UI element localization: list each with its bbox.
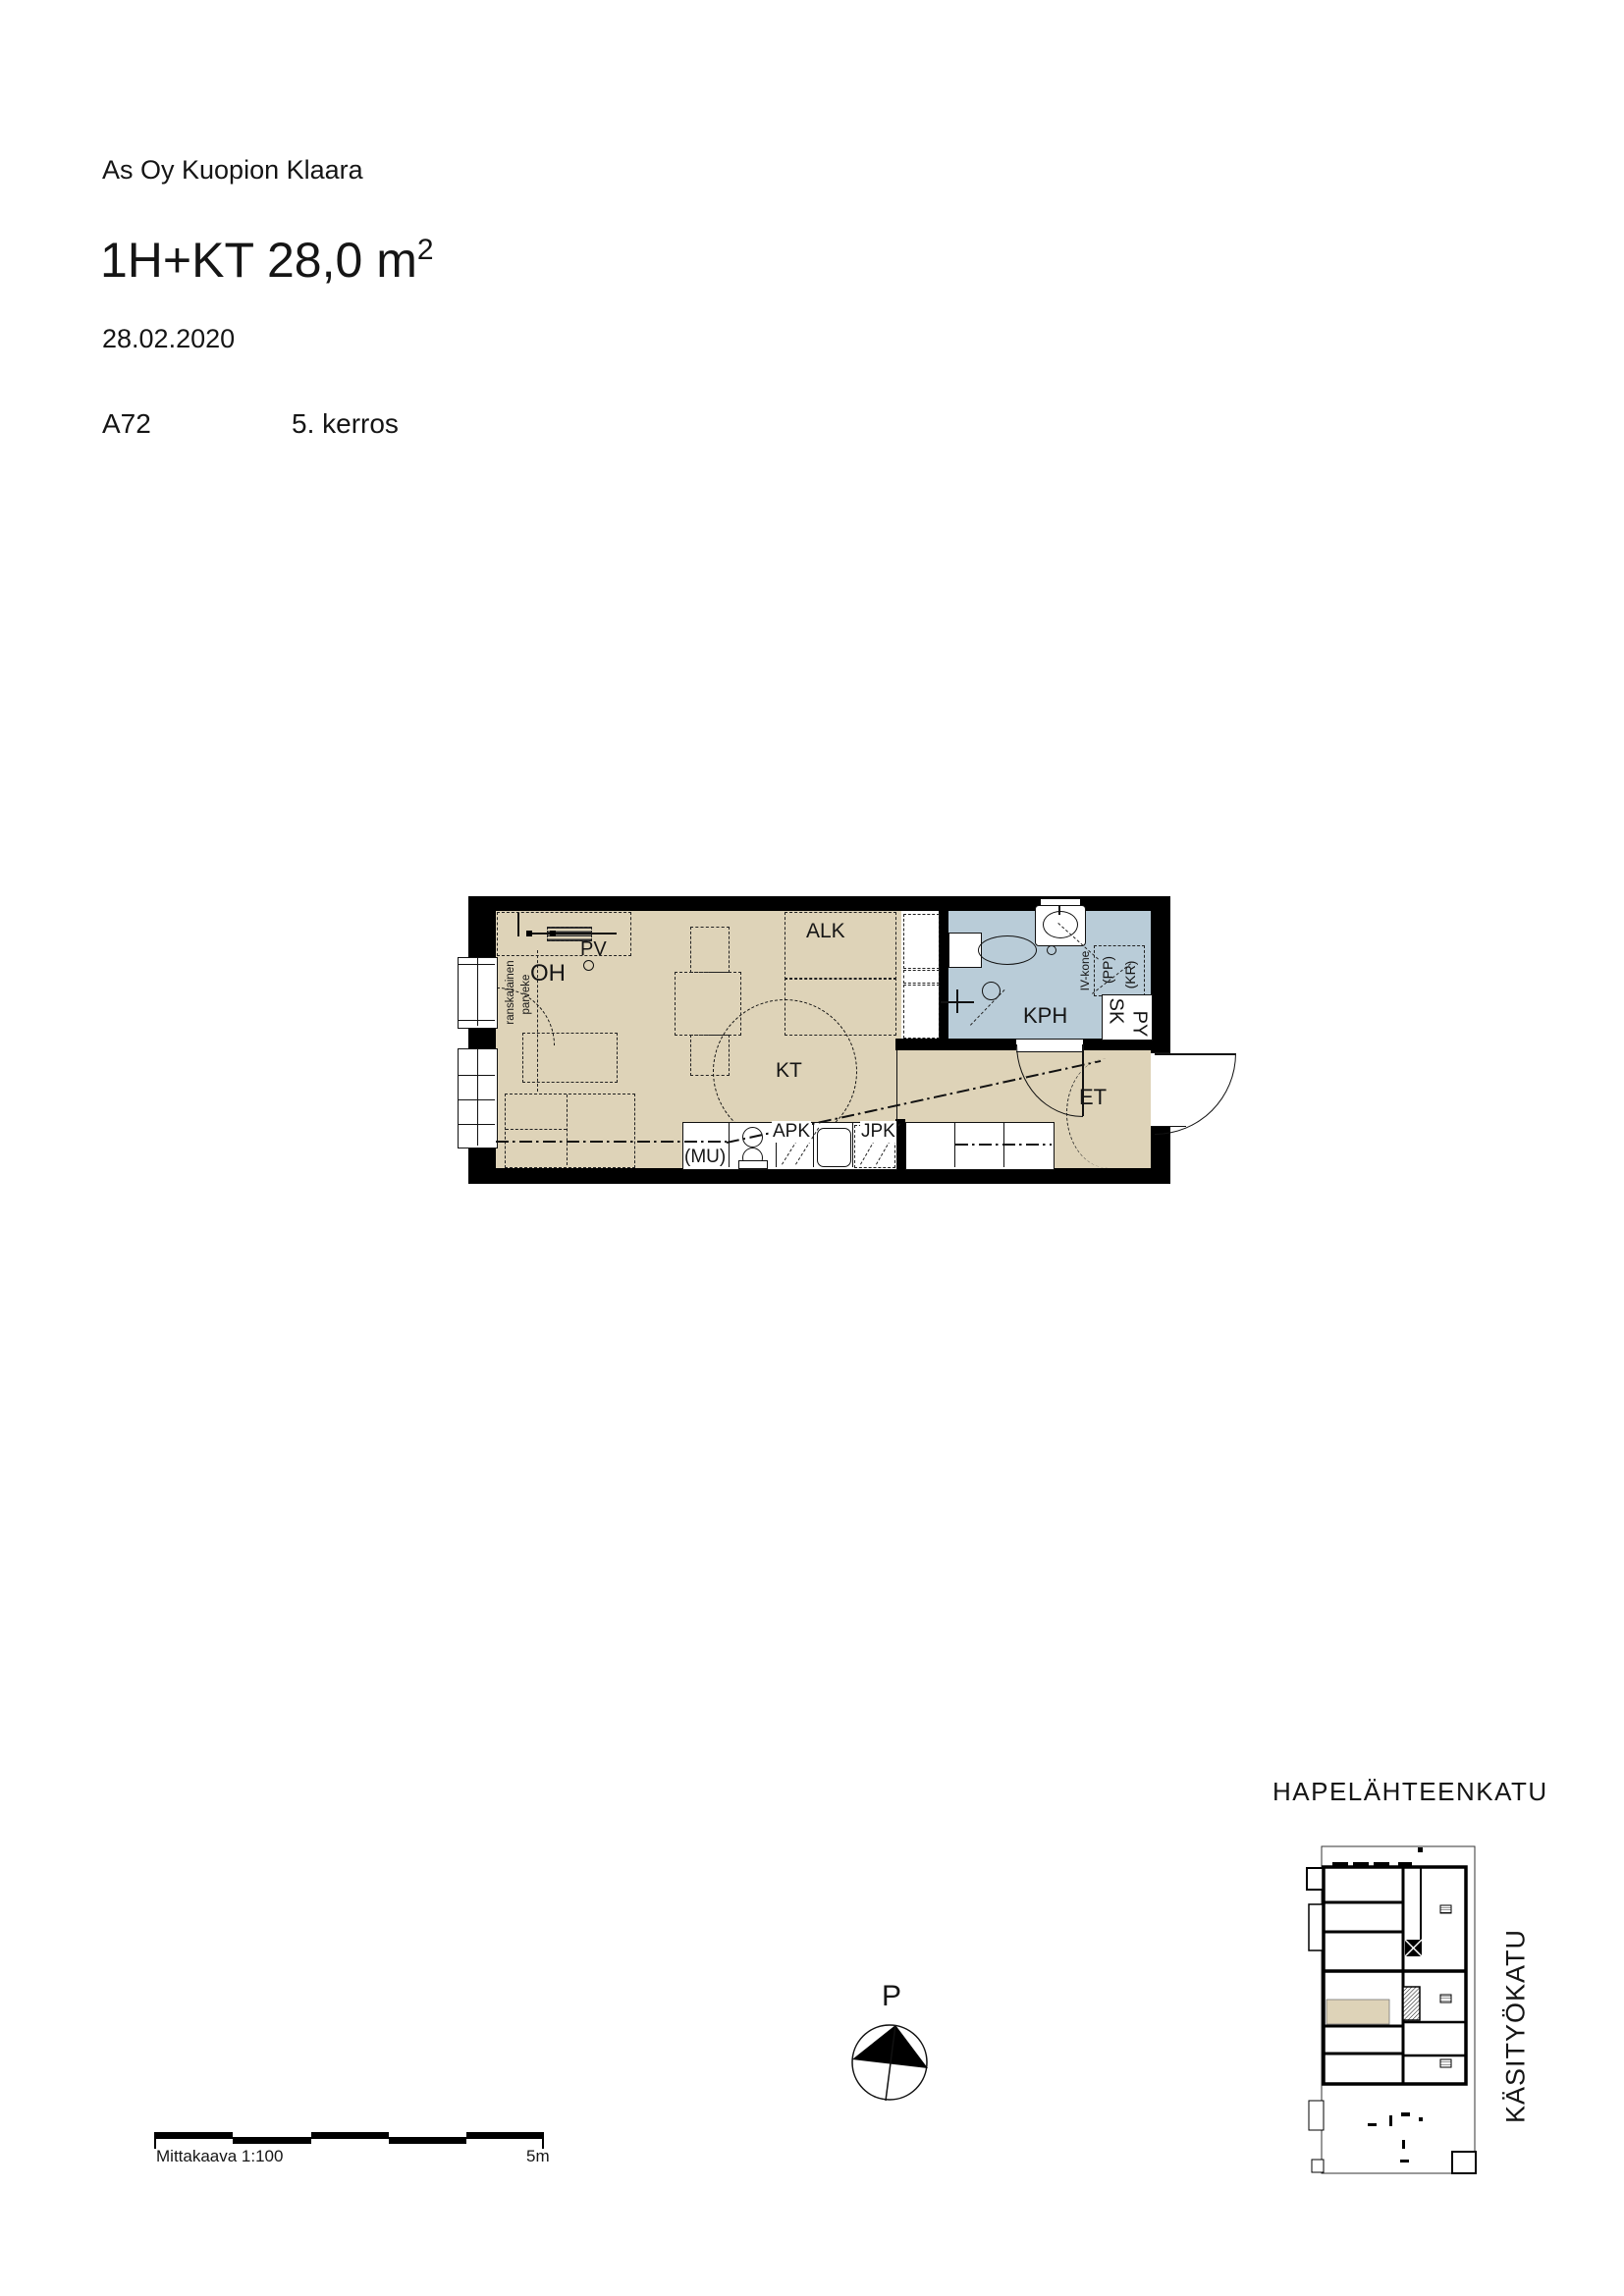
room-label-kph: KPH bbox=[1023, 1003, 1067, 1029]
label-sk: SK bbox=[1105, 998, 1127, 1025]
counter-divider1 bbox=[729, 1123, 730, 1167]
room-label-alk: ALK bbox=[806, 920, 845, 943]
radiator-valve-mark2 bbox=[550, 931, 556, 936]
chair-outline-top bbox=[690, 927, 730, 973]
compass-icon bbox=[846, 2020, 935, 2109]
scalebar-segment bbox=[466, 2132, 543, 2139]
floorplan-document-page: As Oy Kuopion Klaara 1H+KT 28,0 m2 28.02… bbox=[0, 0, 1624, 2296]
counter-divider3 bbox=[813, 1123, 814, 1167]
kitchen-entry-floor-joint bbox=[896, 1050, 897, 1121]
label-py: PY bbox=[1128, 1011, 1151, 1038]
entry-closet bbox=[905, 1122, 1055, 1170]
entry-door-swing-arc bbox=[1155, 1053, 1236, 1135]
window-french-balcony-frame-line2 bbox=[459, 1020, 495, 1021]
sofa-cushion-divider bbox=[567, 1095, 568, 1165]
room-label-oh: OH bbox=[530, 960, 566, 988]
scalebar-segment bbox=[233, 2137, 311, 2144]
apartment-title: 1H+KT 28,0 m2 bbox=[100, 232, 434, 289]
window-living-room-sash-line bbox=[459, 1075, 495, 1076]
wall-bottom bbox=[468, 1168, 1170, 1184]
coffee-table-outline bbox=[522, 1033, 618, 1083]
window-french-balcony-mullion bbox=[477, 958, 478, 1026]
window-living-room-mullion bbox=[477, 1049, 478, 1146]
wall-bathroom-bottom-left bbox=[895, 1039, 1016, 1050]
alcove-wardrobe-lower bbox=[903, 985, 940, 1039]
label-pp: (PP) bbox=[1100, 956, 1115, 984]
label-jpk: JPK bbox=[860, 1121, 896, 1143]
window-french-balcony-frame-line bbox=[459, 964, 495, 965]
apartment-type-area: 1H+KT 28,0 m bbox=[100, 233, 417, 288]
sofa-outline bbox=[505, 1094, 635, 1168]
floor-drain bbox=[1047, 945, 1056, 955]
label-apk: APK bbox=[772, 1121, 811, 1143]
toilet-tank bbox=[948, 933, 982, 968]
plan-date: 28.02.2020 bbox=[102, 324, 235, 354]
washbasin-tap bbox=[1058, 905, 1060, 915]
wall-stub-mark bbox=[517, 913, 519, 936]
room-label-pv: PV bbox=[580, 938, 607, 961]
siteplan-map bbox=[1301, 1843, 1483, 2182]
label-mu: (MU) bbox=[684, 1147, 726, 1168]
street-label-right: KÄSITYÖKATU bbox=[1501, 1929, 1532, 2123]
apartment-id: A72 bbox=[102, 408, 151, 440]
radiator-pipe-line bbox=[528, 933, 617, 934]
entry-closet-rod-line bbox=[955, 1144, 1052, 1146]
scalebar-segment bbox=[155, 2132, 233, 2139]
label-french-balcony-line1: ranskalainen bbox=[505, 960, 516, 1024]
toilet-bowl bbox=[978, 935, 1037, 965]
square-meter-superscript: 2 bbox=[417, 234, 434, 266]
scalebar-max-label: 5m bbox=[526, 2147, 550, 2166]
stove-panel bbox=[738, 1160, 768, 1169]
entry-door-threshold-tick bbox=[1170, 1126, 1186, 1127]
label-french-balcony-line2: parveke bbox=[520, 975, 532, 1015]
compass-north-label: P bbox=[882, 1980, 901, 2013]
window-living-room-sash-line3 bbox=[459, 1124, 495, 1125]
kitchen-sink bbox=[817, 1128, 851, 1167]
ceiling-point-symbol bbox=[583, 960, 594, 971]
room-label-kt: KT bbox=[776, 1059, 802, 1083]
label-iv-kone: IV-kone bbox=[1078, 951, 1092, 991]
shower-tap-riser bbox=[956, 989, 958, 1013]
clearance-line-horizontal bbox=[496, 1141, 727, 1143]
label-kr: (KR) bbox=[1122, 961, 1138, 989]
scalebar-caption: Mittakaava 1:100 bbox=[156, 2147, 283, 2166]
alcove-wardrobe-middle bbox=[903, 970, 940, 984]
window-living-room-sash-line2 bbox=[459, 1099, 495, 1100]
project-name: As Oy Kuopion Klaara bbox=[102, 155, 363, 186]
room-label-et: ET bbox=[1079, 1085, 1107, 1110]
alcove-wardrobe-upper bbox=[903, 914, 940, 969]
wall-bathroom-left bbox=[939, 911, 948, 1039]
floor-number: 5. kerros bbox=[292, 408, 399, 440]
wall-right bbox=[1151, 896, 1170, 1184]
entry-clearance-dashed-arc bbox=[1066, 1058, 1150, 1168]
sofa-cushion-divider2 bbox=[506, 1129, 567, 1130]
street-label-top: HAPELÄHTEENKATU bbox=[1272, 1777, 1548, 1807]
radiator-valve-mark bbox=[526, 931, 532, 936]
counter-divider4 bbox=[852, 1123, 853, 1167]
scalebar-segment bbox=[389, 2137, 466, 2144]
scalebar-segment bbox=[311, 2132, 389, 2139]
